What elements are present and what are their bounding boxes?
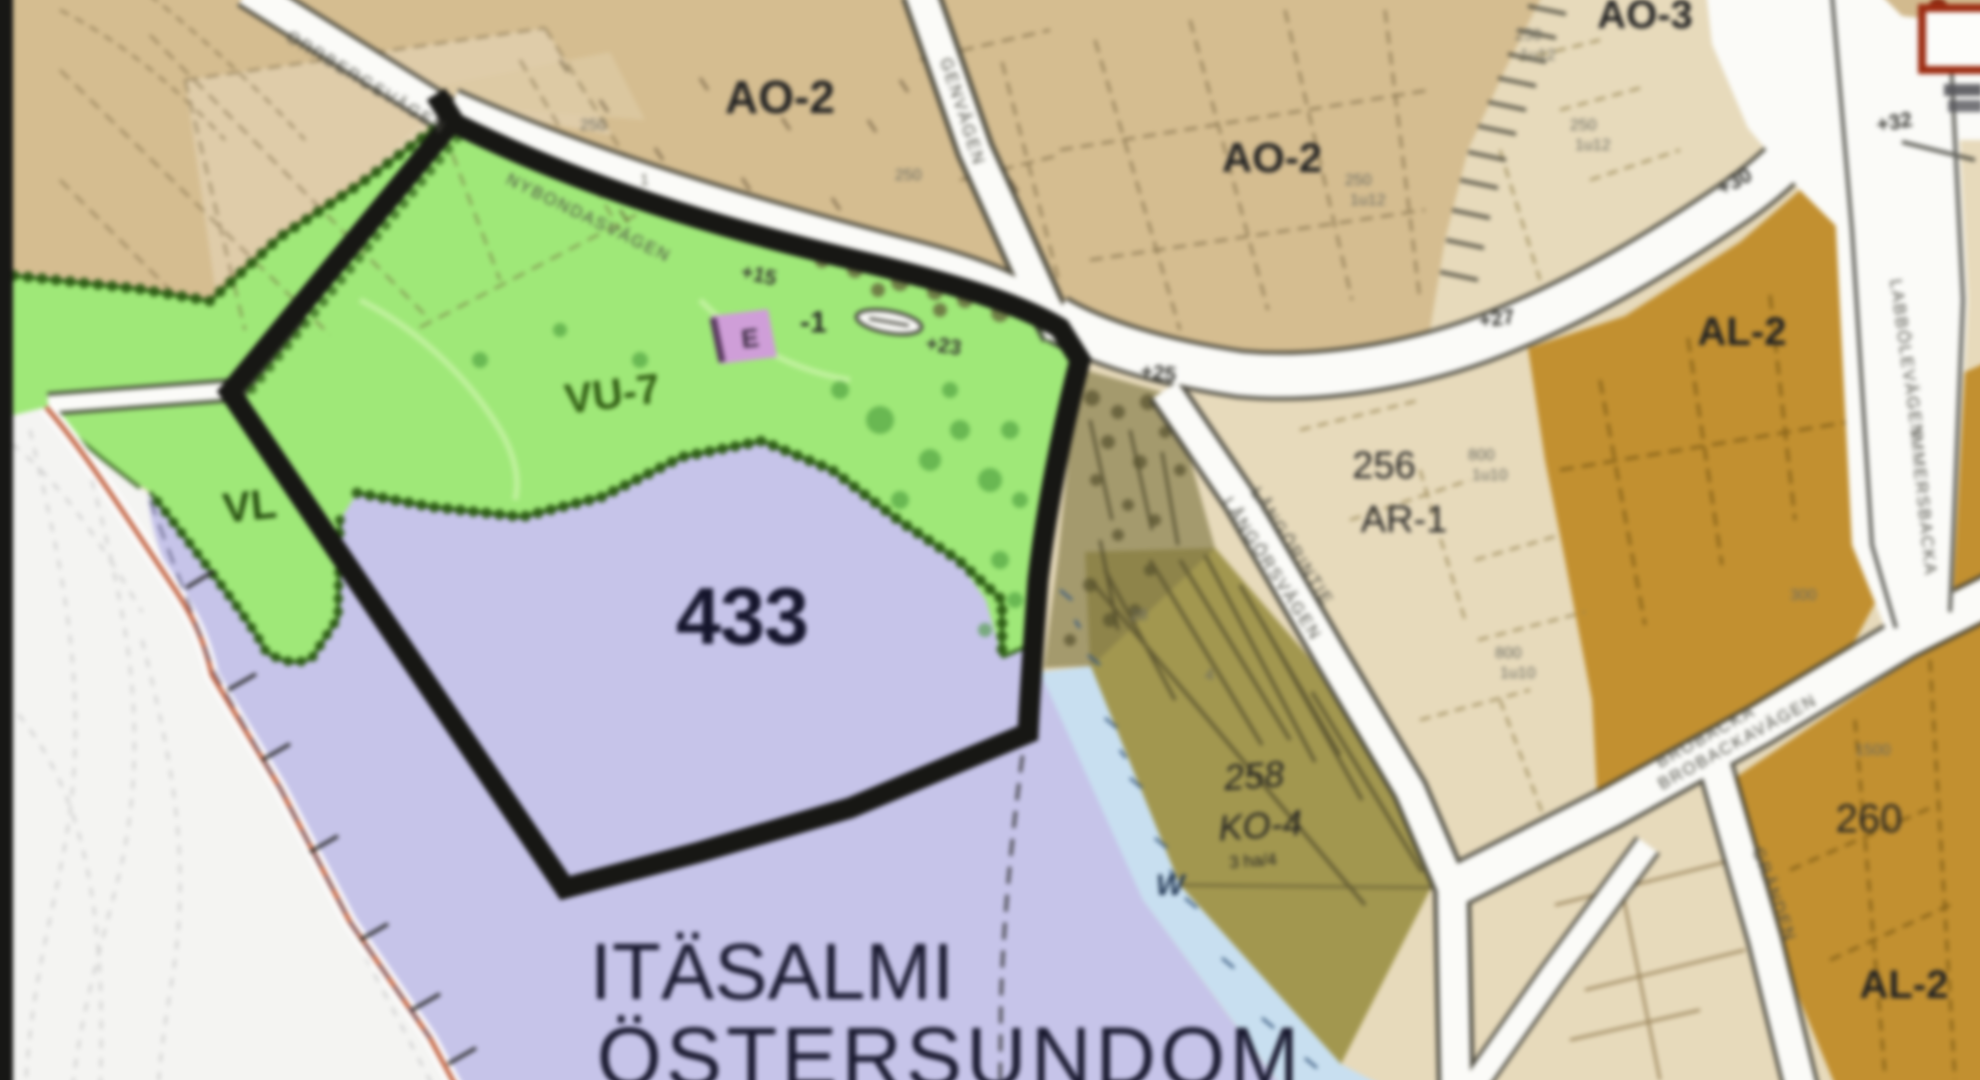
svg-text:-1: -1 bbox=[800, 306, 827, 339]
svg-text:28: 28 bbox=[1130, 607, 1148, 624]
svg-text:AO-2: AO-2 bbox=[1222, 134, 1322, 181]
svg-text:300: 300 bbox=[1790, 587, 1817, 604]
svg-text:1u12: 1u12 bbox=[1350, 192, 1386, 209]
svg-text:ITÄSALMI: ITÄSALMI bbox=[590, 927, 955, 1016]
svg-text:+27: +27 bbox=[1477, 305, 1515, 333]
svg-text:1u10: 1u10 bbox=[1472, 467, 1508, 484]
svg-text:AL-2: AL-2 bbox=[1860, 963, 1949, 1007]
svg-text:AO-2: AO-2 bbox=[725, 71, 835, 123]
svg-text:ÖSTERSUNDOM: ÖSTERSUNDOM bbox=[597, 1010, 1304, 1080]
svg-text:AL-2: AL-2 bbox=[1698, 310, 1787, 354]
svg-text:1u12: 1u12 bbox=[1520, 47, 1556, 64]
svg-text:W: W bbox=[1156, 869, 1187, 902]
svg-text:800: 800 bbox=[1495, 645, 1522, 662]
svg-text:433: 433 bbox=[676, 572, 808, 662]
svg-text:E: E bbox=[740, 322, 760, 354]
svg-text:1500: 1500 bbox=[1855, 742, 1891, 759]
svg-text:+23: +23 bbox=[924, 332, 962, 360]
svg-text:250: 250 bbox=[1515, 27, 1542, 44]
svg-text:3 ha/4: 3 ha/4 bbox=[1229, 850, 1277, 872]
svg-text:AR-1: AR-1 bbox=[1361, 499, 1448, 541]
svg-text:256: 256 bbox=[1352, 445, 1415, 487]
svg-text:258: 258 bbox=[1222, 753, 1286, 798]
svg-text:250: 250 bbox=[895, 167, 922, 184]
svg-text:250: 250 bbox=[580, 117, 607, 134]
svg-text:250: 250 bbox=[1570, 117, 1597, 134]
svg-text:1: 1 bbox=[640, 172, 649, 189]
svg-text:AO-3: AO-3 bbox=[1597, 0, 1693, 37]
svg-text:250: 250 bbox=[1345, 172, 1372, 189]
svg-text:VL: VL bbox=[220, 479, 278, 531]
svg-text:800: 800 bbox=[1468, 447, 1495, 464]
svg-text:+25: +25 bbox=[1139, 360, 1177, 387]
svg-text:1u10: 1u10 bbox=[1500, 665, 1536, 682]
svg-text:260: 260 bbox=[1836, 797, 1903, 841]
svg-text:KO-4: KO-4 bbox=[1217, 802, 1304, 849]
svg-text:4: 4 bbox=[1205, 667, 1214, 684]
svg-text:1u12: 1u12 bbox=[1575, 137, 1611, 154]
